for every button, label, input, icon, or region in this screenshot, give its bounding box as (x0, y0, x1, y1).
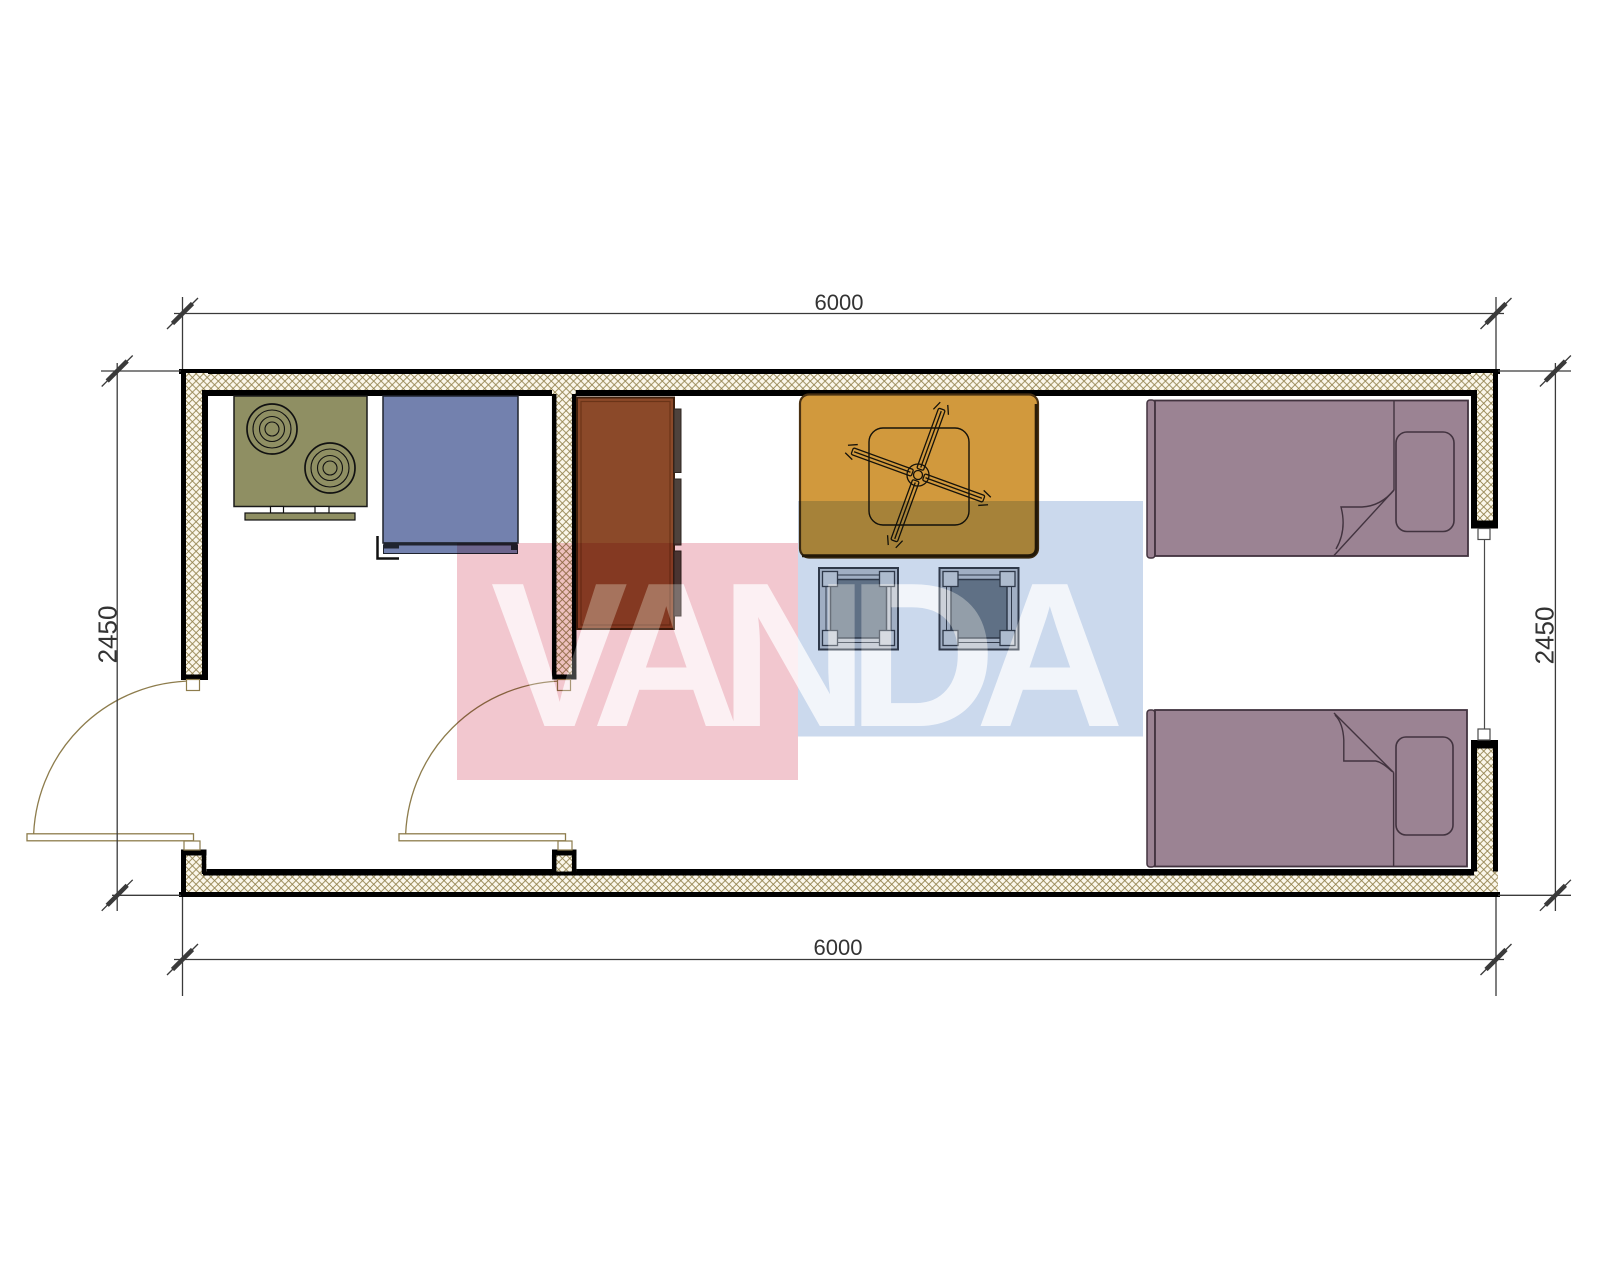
svg-text:2450: 2450 (93, 606, 123, 664)
svg-text:2450: 2450 (1530, 607, 1560, 665)
svg-text:6000: 6000 (814, 935, 863, 960)
svg-text:6000: 6000 (815, 290, 864, 315)
svg-text:VANDA: VANDA (491, 540, 1120, 770)
